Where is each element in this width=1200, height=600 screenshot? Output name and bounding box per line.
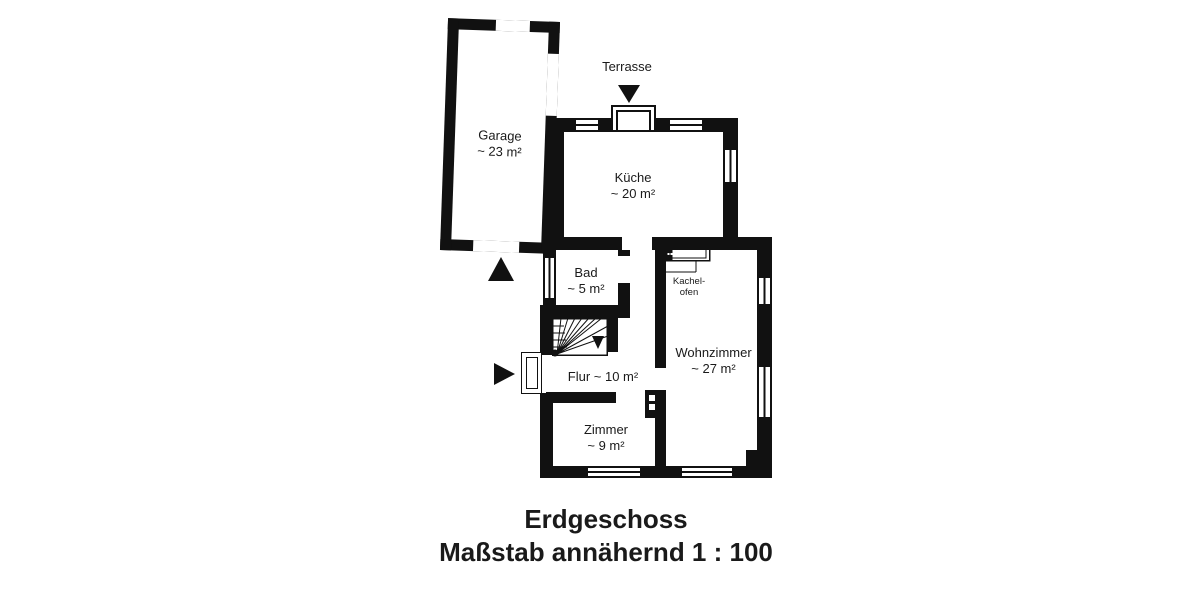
stair-newel-dot: [552, 350, 559, 357]
staircase: [552, 318, 608, 356]
window: [758, 278, 771, 304]
window: [576, 119, 598, 131]
plan-title: Erdgeschoss Maßstab annähernd 1 : 100: [306, 503, 906, 569]
kachelofen-label: Kachel- ofen: [667, 277, 711, 299]
wall: [543, 237, 622, 250]
wall: [723, 118, 738, 250]
wall: [540, 318, 552, 355]
room-label-kueche: Küche ~ 20 m²: [583, 170, 683, 202]
wall: [548, 118, 564, 250]
main-entrance-arrow-icon: [494, 363, 515, 385]
window: [724, 150, 737, 182]
terrace-door-leaf: [616, 110, 651, 132]
wall: [655, 418, 666, 470]
terrasse-label: Terrasse: [577, 59, 677, 75]
chimney-flue: [649, 404, 655, 410]
window: [496, 20, 530, 32]
window: [546, 54, 559, 116]
chimney-flue: [649, 395, 655, 401]
terrasse-entrance-arrow-icon: [618, 85, 640, 103]
stairs-direction-arrow-icon: [592, 336, 604, 349]
entrance-door-leaf: [526, 357, 538, 389]
kachelofen: [666, 245, 712, 277]
wall: [540, 466, 772, 478]
wall: [540, 305, 630, 318]
chimney: [645, 390, 666, 418]
wall: [746, 450, 772, 478]
wall: [618, 250, 630, 256]
room-label-wohnzimmer: Wohnzimmer ~ 27 m²: [656, 345, 771, 377]
window: [588, 467, 640, 477]
floor-plan: Garage ~ 23 m² Terrasse Küche ~ 20 m² Ba…: [0, 0, 1200, 600]
wall: [546, 392, 616, 403]
wall: [608, 318, 618, 352]
window: [682, 467, 732, 477]
room-label-flur: Flur ~ 10 m²: [548, 369, 658, 385]
garage-entrance-arrow-icon: [488, 257, 514, 281]
room-label-bad: Bad ~ 5 m²: [548, 265, 624, 297]
room-label-garage: Garage ~ 23 m²: [443, 126, 556, 162]
garage-door: [473, 240, 519, 253]
window: [670, 119, 702, 131]
floor-title: Erdgeschoss: [306, 503, 906, 536]
room-label-zimmer: Zimmer ~ 9 m²: [563, 422, 649, 454]
scale-note: Maßstab annähernd 1 : 100: [306, 536, 906, 569]
garage-room: Garage ~ 23 m²: [440, 18, 560, 254]
